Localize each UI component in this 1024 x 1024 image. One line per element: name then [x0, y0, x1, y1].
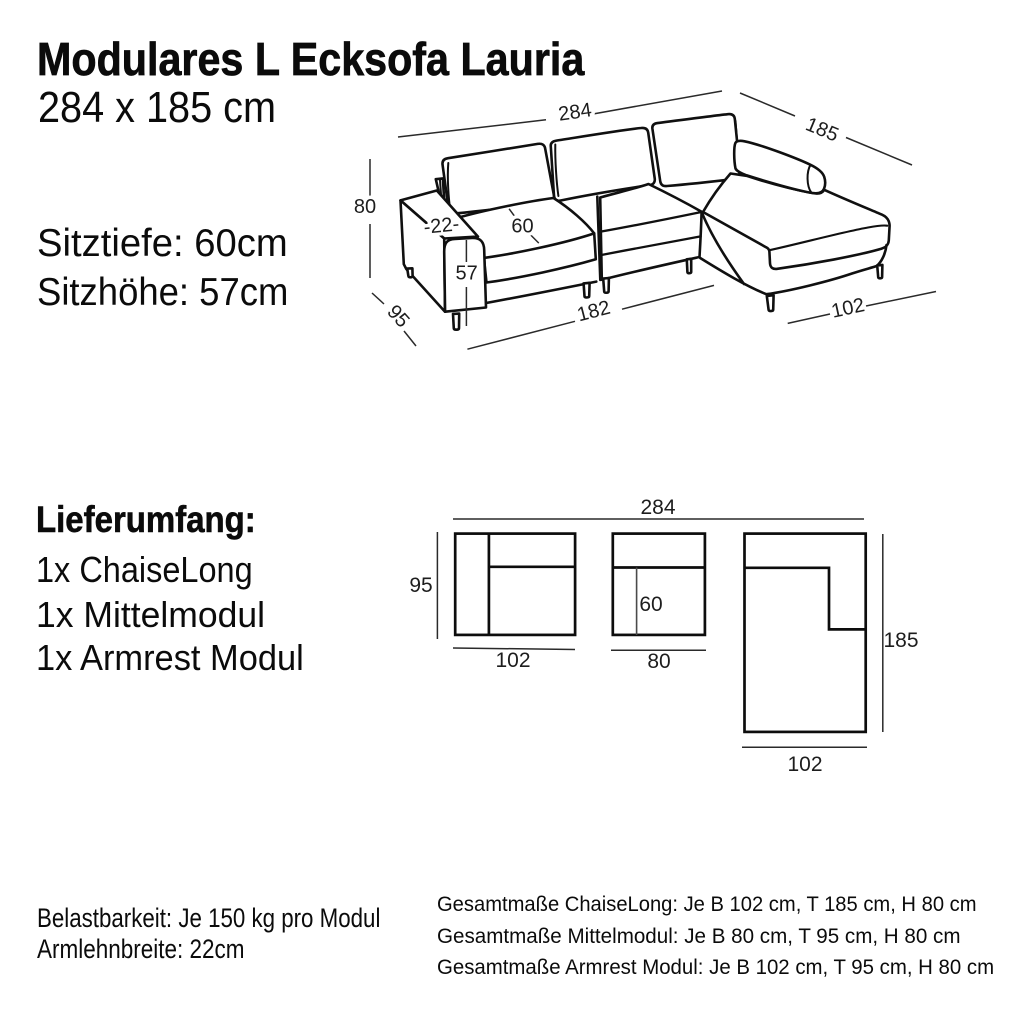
svg-text:102: 102: [495, 649, 530, 672]
svg-text:102: 102: [787, 753, 822, 776]
svg-text:185: 185: [883, 629, 918, 652]
svg-text:284: 284: [557, 99, 593, 125]
svg-text:60: 60: [511, 216, 533, 238]
svg-text:95: 95: [409, 574, 432, 597]
svg-text:80: 80: [354, 196, 376, 218]
svg-text:185: 185: [802, 113, 841, 146]
svg-text:-22-: -22-: [423, 213, 461, 239]
svg-text:57: 57: [455, 263, 477, 285]
svg-text:80: 80: [647, 650, 670, 673]
svg-text:284: 284: [640, 496, 675, 519]
svg-text:182: 182: [575, 297, 613, 327]
svg-text:60: 60: [639, 593, 662, 616]
svg-text:95: 95: [382, 301, 413, 332]
svg-text:102: 102: [829, 294, 866, 323]
